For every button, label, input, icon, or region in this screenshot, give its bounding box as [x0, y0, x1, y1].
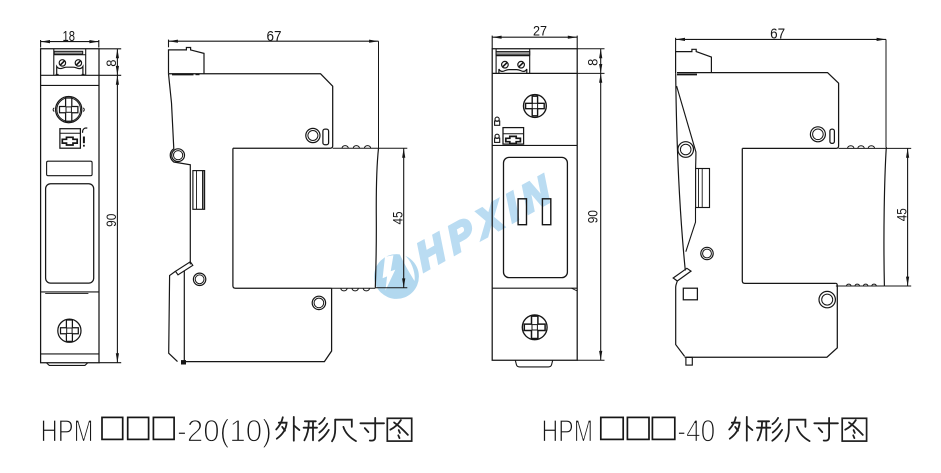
svg-text:45: 45: [893, 208, 909, 221]
svg-text:67: 67: [770, 26, 785, 43]
svg-text:-20(10): -20(10): [177, 413, 272, 449]
svg-text:HPM: HPM: [542, 413, 594, 449]
svg-text:90: 90: [103, 214, 119, 227]
svg-text:45: 45: [390, 211, 406, 224]
svg-text:-40: -40: [677, 413, 715, 449]
svg-text:HPM: HPM: [41, 413, 94, 449]
svg-text:8: 8: [584, 59, 600, 66]
svg-text:18: 18: [63, 28, 76, 45]
svg-text:67: 67: [267, 28, 282, 45]
svg-text:8: 8: [103, 59, 119, 66]
svg-text:90: 90: [585, 210, 601, 223]
svg-text:27: 27: [533, 23, 547, 39]
